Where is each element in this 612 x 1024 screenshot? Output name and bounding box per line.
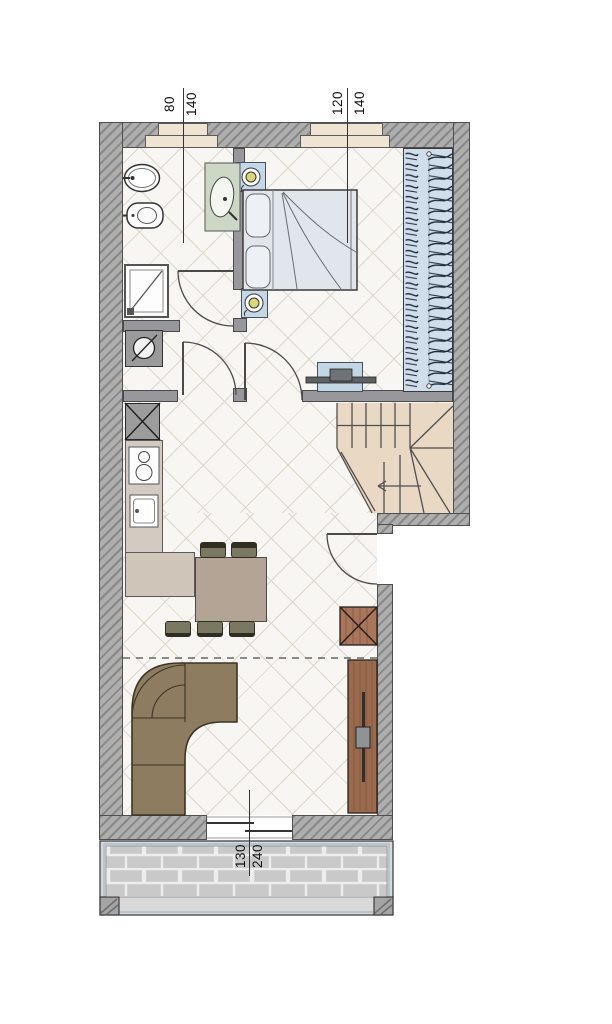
terrace-door-width-label: 130 — [232, 834, 248, 878]
bedroom-window-sill — [300, 135, 390, 148]
chair — [165, 621, 191, 637]
bedroom-window-width-label: 120 — [329, 81, 345, 125]
bathroom-window-width-label: 80 — [161, 82, 177, 126]
wall-bottom-left — [99, 815, 207, 840]
chair — [197, 621, 223, 637]
wall-stub-bedroom-door — [233, 388, 247, 402]
nightstand-top — [236, 162, 266, 192]
wall-right-lower-b — [377, 584, 393, 840]
wall-right-upper — [453, 122, 470, 526]
wall-bottom-right — [292, 815, 393, 840]
dining-table — [195, 557, 267, 622]
terrace-door-height-label: 240 — [249, 834, 265, 878]
kitchen-counter — [125, 440, 163, 553]
chair — [200, 542, 226, 558]
terrace-pillar-left — [100, 897, 119, 915]
bedroom-window-height-label: 140 — [351, 81, 367, 125]
wall-hall-bottom — [123, 390, 178, 402]
wardrobe — [403, 148, 453, 392]
bedroom-desk-seat — [317, 362, 363, 392]
chair — [229, 621, 255, 637]
wall-stub-bath-door — [233, 318, 247, 332]
bathroom-window-sill — [145, 135, 218, 148]
kitchen-island — [125, 552, 195, 597]
wall-left — [99, 122, 123, 840]
nightstand-bottom — [241, 288, 268, 318]
chair — [231, 542, 257, 558]
washing-machine — [125, 330, 163, 367]
floor-plan: 80 140 120 140 130 240 — [0, 0, 612, 1024]
duct-shaft — [125, 403, 160, 440]
bathroom-window-height-label: 140 — [183, 82, 199, 126]
terrace-pillar-right — [374, 897, 393, 915]
wall-right-lower-a — [377, 524, 393, 534]
